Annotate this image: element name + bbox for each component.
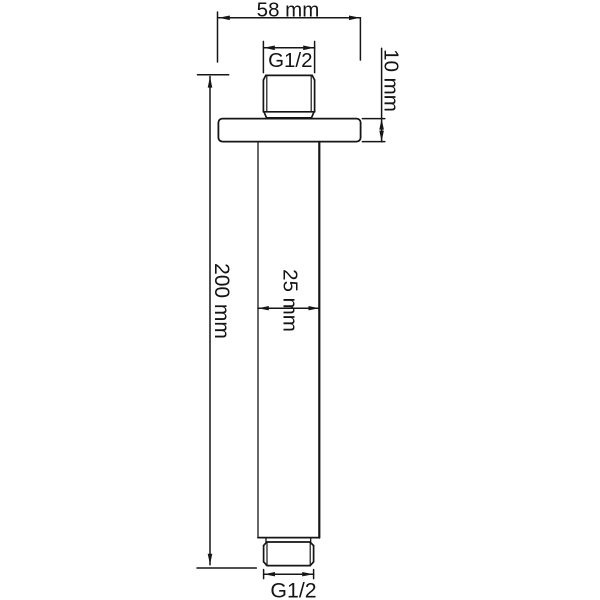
svg-text:200 mm: 200 mm [210, 263, 233, 339]
svg-text:G1/2: G1/2 [268, 49, 312, 72]
svg-text:58 mm: 58 mm [257, 0, 320, 22]
svg-text:10 mm: 10 mm [380, 49, 403, 112]
svg-text:25 mm: 25 mm [279, 269, 302, 332]
svg-text:G1/2: G1/2 [270, 578, 316, 600]
